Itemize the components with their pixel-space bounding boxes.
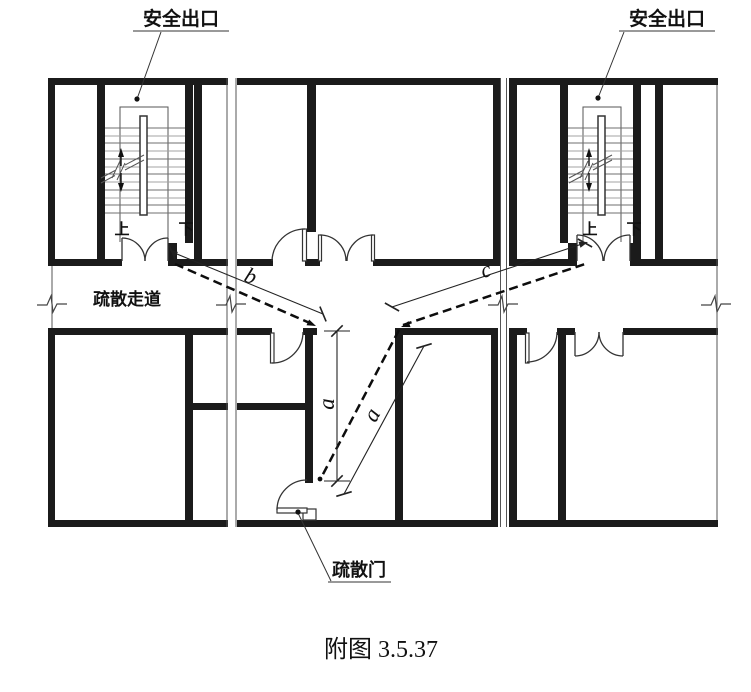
stair-down-label-left: 下 xyxy=(178,221,193,238)
escape-paths xyxy=(175,263,588,481)
stair-door-right xyxy=(577,235,630,261)
safety-exit-left-label: 安全出口 xyxy=(143,7,219,30)
room-door-middle-left xyxy=(272,229,307,261)
leader-dot-left xyxy=(134,96,139,101)
stair-up-label-left: 上 xyxy=(114,221,129,238)
safety-exit-right-label: 安全出口 xyxy=(629,7,705,30)
dimension-label-a-vertical: a xyxy=(314,398,339,410)
walls-middle-module xyxy=(237,78,500,527)
room-door-lower-left xyxy=(271,332,304,363)
stairwell-right: 上 下 xyxy=(568,107,642,242)
dimension-c: c xyxy=(385,239,592,311)
dimension-label-a-diagonal: a xyxy=(358,404,385,426)
leader-dot-evac-door xyxy=(295,509,300,514)
leader-dot-right xyxy=(595,95,600,100)
stair-direction-arrow-left xyxy=(101,148,144,192)
walls-right-module xyxy=(509,78,718,527)
room-door-right-single xyxy=(526,332,558,363)
evacuation-door-label: 疏散门 xyxy=(332,559,386,580)
floor-plan-figure: 上 下 xyxy=(0,0,751,692)
dimension-label-b: b xyxy=(241,262,261,289)
stair-divider-left xyxy=(140,116,147,215)
break-symbol-right-edge xyxy=(701,296,731,312)
break-symbol-right-joint xyxy=(488,296,518,312)
annotation-safety-exit-left: 安全出口 xyxy=(133,7,229,102)
break-symbol-left-joint xyxy=(216,296,246,312)
room-door-middle-double xyxy=(319,235,375,261)
room-door-right-double xyxy=(575,332,623,356)
evacuation-corridor-label: 疏散走道 xyxy=(93,289,161,309)
stairwell-left: 上 下 xyxy=(101,107,194,242)
stair-door-left xyxy=(122,238,168,261)
dimension-a-vertical: a xyxy=(314,325,350,486)
figure-caption: 附图 3.5.37 xyxy=(324,636,438,663)
evacuation-plan-drawing: 上 下 xyxy=(0,0,751,692)
